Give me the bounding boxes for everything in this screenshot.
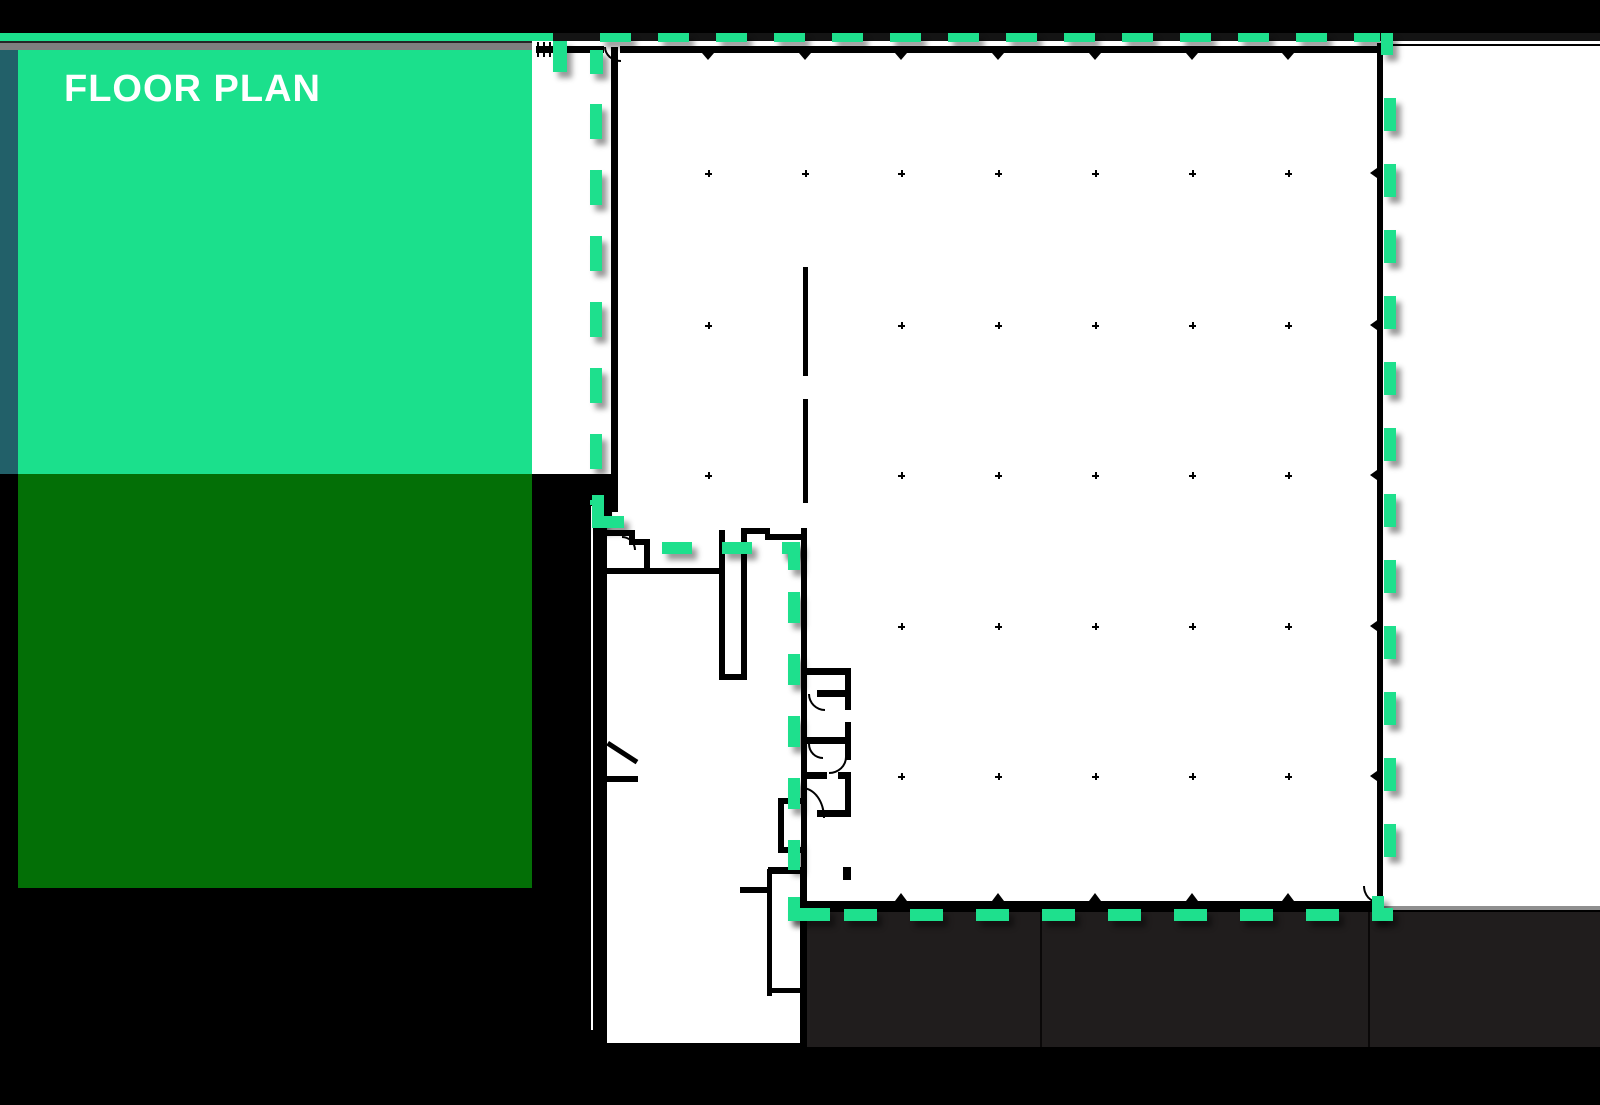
- column-grid-dot: [898, 170, 905, 177]
- wall-segment: [803, 267, 808, 376]
- wall-segment: [607, 568, 723, 574]
- column-grid-dot: [1092, 322, 1099, 329]
- door-jamb-tick: [537, 42, 539, 57]
- column-grid-dot: [995, 170, 1002, 177]
- column-grid-dot: [995, 773, 1002, 780]
- column-grid-dot: [1189, 322, 1196, 329]
- wall-column-notch: [1186, 53, 1198, 60]
- wall-segment: [803, 399, 808, 503]
- selection-border-right: [1384, 98, 1396, 864]
- wall-segment: [719, 674, 747, 680]
- left-hairline: [591, 506, 593, 1030]
- column-grid-dot: [1189, 472, 1196, 479]
- column-grid-dot: [1189, 773, 1196, 780]
- wall-column-notch: [799, 53, 811, 60]
- column-grid-dot: [995, 472, 1002, 479]
- column-grid-dot: [1285, 472, 1292, 479]
- column-grid-dot: [898, 773, 905, 780]
- stair-room-fill: [772, 874, 800, 991]
- column-grid-dot: [1092, 170, 1099, 177]
- selection-border-corner-dash: [1381, 33, 1393, 55]
- teal-edge-bar: [0, 50, 18, 474]
- door-jamb-mark: [843, 867, 851, 880]
- floor-plan-graphic: FLOOR PLAN: [0, 0, 1600, 1105]
- title-panel: [18, 50, 532, 474]
- column-grid-dot: [705, 472, 712, 479]
- wall-segment: [767, 869, 772, 996]
- wall-column-notch: [895, 893, 907, 901]
- selection-border-corner-dash: [553, 41, 567, 72]
- wall-segment: [767, 988, 805, 993]
- column-grid-dot: [1285, 322, 1292, 329]
- column-grid-dot: [1285, 170, 1292, 177]
- column-grid-dot: [898, 623, 905, 630]
- wall-column-notch: [1282, 53, 1294, 60]
- wall-column-notch: [1089, 893, 1101, 901]
- selection-border-corner-dash: [1372, 908, 1393, 921]
- wall-segment: [604, 1043, 800, 1048]
- door-jamb-tick: [543, 42, 545, 57]
- wall-column-notch: [1370, 621, 1377, 631]
- selection-border-mid: [662, 542, 790, 554]
- selection-border-left: [590, 104, 602, 505]
- wall-segment: [1383, 44, 1600, 46]
- left-black-band: [532, 474, 607, 1105]
- selection-border-top: [600, 33, 1380, 42]
- wall-segment: [845, 668, 851, 710]
- wall-column-notch: [702, 53, 714, 60]
- dark-green-panel: [18, 474, 532, 888]
- wall-column-notch: [1370, 470, 1377, 480]
- wall-column-notch: [1089, 53, 1101, 60]
- selection-border-corner-dash: [592, 516, 624, 528]
- wall-segment: [807, 772, 827, 779]
- column-grid-dot: [1285, 623, 1292, 630]
- wall-segment: [807, 737, 851, 744]
- wall-segment: [611, 47, 618, 512]
- wall-segment: [765, 534, 805, 540]
- wall-segment: [838, 772, 851, 779]
- column-grid-dot: [1092, 472, 1099, 479]
- selection-border-corner-dash: [788, 908, 830, 921]
- column-grid-dot: [1189, 623, 1196, 630]
- selection-border-corner-dash: [590, 50, 603, 74]
- wall-column-notch: [992, 893, 1004, 901]
- column-grid-dot: [1189, 170, 1196, 177]
- selection-border-lower-left: [788, 592, 800, 870]
- wall-column-notch: [992, 53, 1004, 60]
- wall-column-notch: [1282, 893, 1294, 901]
- wall-segment: [607, 776, 638, 782]
- wall-column-notch: [1370, 168, 1377, 178]
- column-grid-dot: [898, 322, 905, 329]
- column-grid-dot: [1092, 623, 1099, 630]
- selection-border-bottom: [844, 909, 1360, 921]
- wall-segment: [1377, 43, 1383, 905]
- wall-segment: [800, 869, 805, 996]
- wall-column-notch: [895, 53, 907, 60]
- dock-divider: [1368, 912, 1370, 1047]
- dock-top-gray-line: [1383, 906, 1600, 910]
- wall-segment: [778, 798, 784, 853]
- column-grid-dot: [898, 472, 905, 479]
- gray-strip: [0, 43, 536, 50]
- wall-column-notch: [1186, 893, 1198, 901]
- column-grid-dot: [995, 623, 1002, 630]
- door-jamb-tick: [549, 42, 551, 57]
- dock-divider: [1040, 912, 1042, 1047]
- column-grid-dot: [1285, 773, 1292, 780]
- page-title: FLOOR PLAN: [64, 68, 321, 111]
- wall-column-notch: [1370, 771, 1377, 781]
- selection-border-corner-dash: [788, 542, 800, 570]
- column-grid-dot: [995, 322, 1002, 329]
- column-grid-dot: [802, 170, 809, 177]
- wall-column-notch: [1370, 320, 1377, 330]
- column-grid-dot: [705, 322, 712, 329]
- column-grid-dot: [705, 170, 712, 177]
- dock-strip: [807, 912, 1600, 1047]
- column-grid-dot: [1092, 773, 1099, 780]
- wall-segment: [620, 46, 1380, 53]
